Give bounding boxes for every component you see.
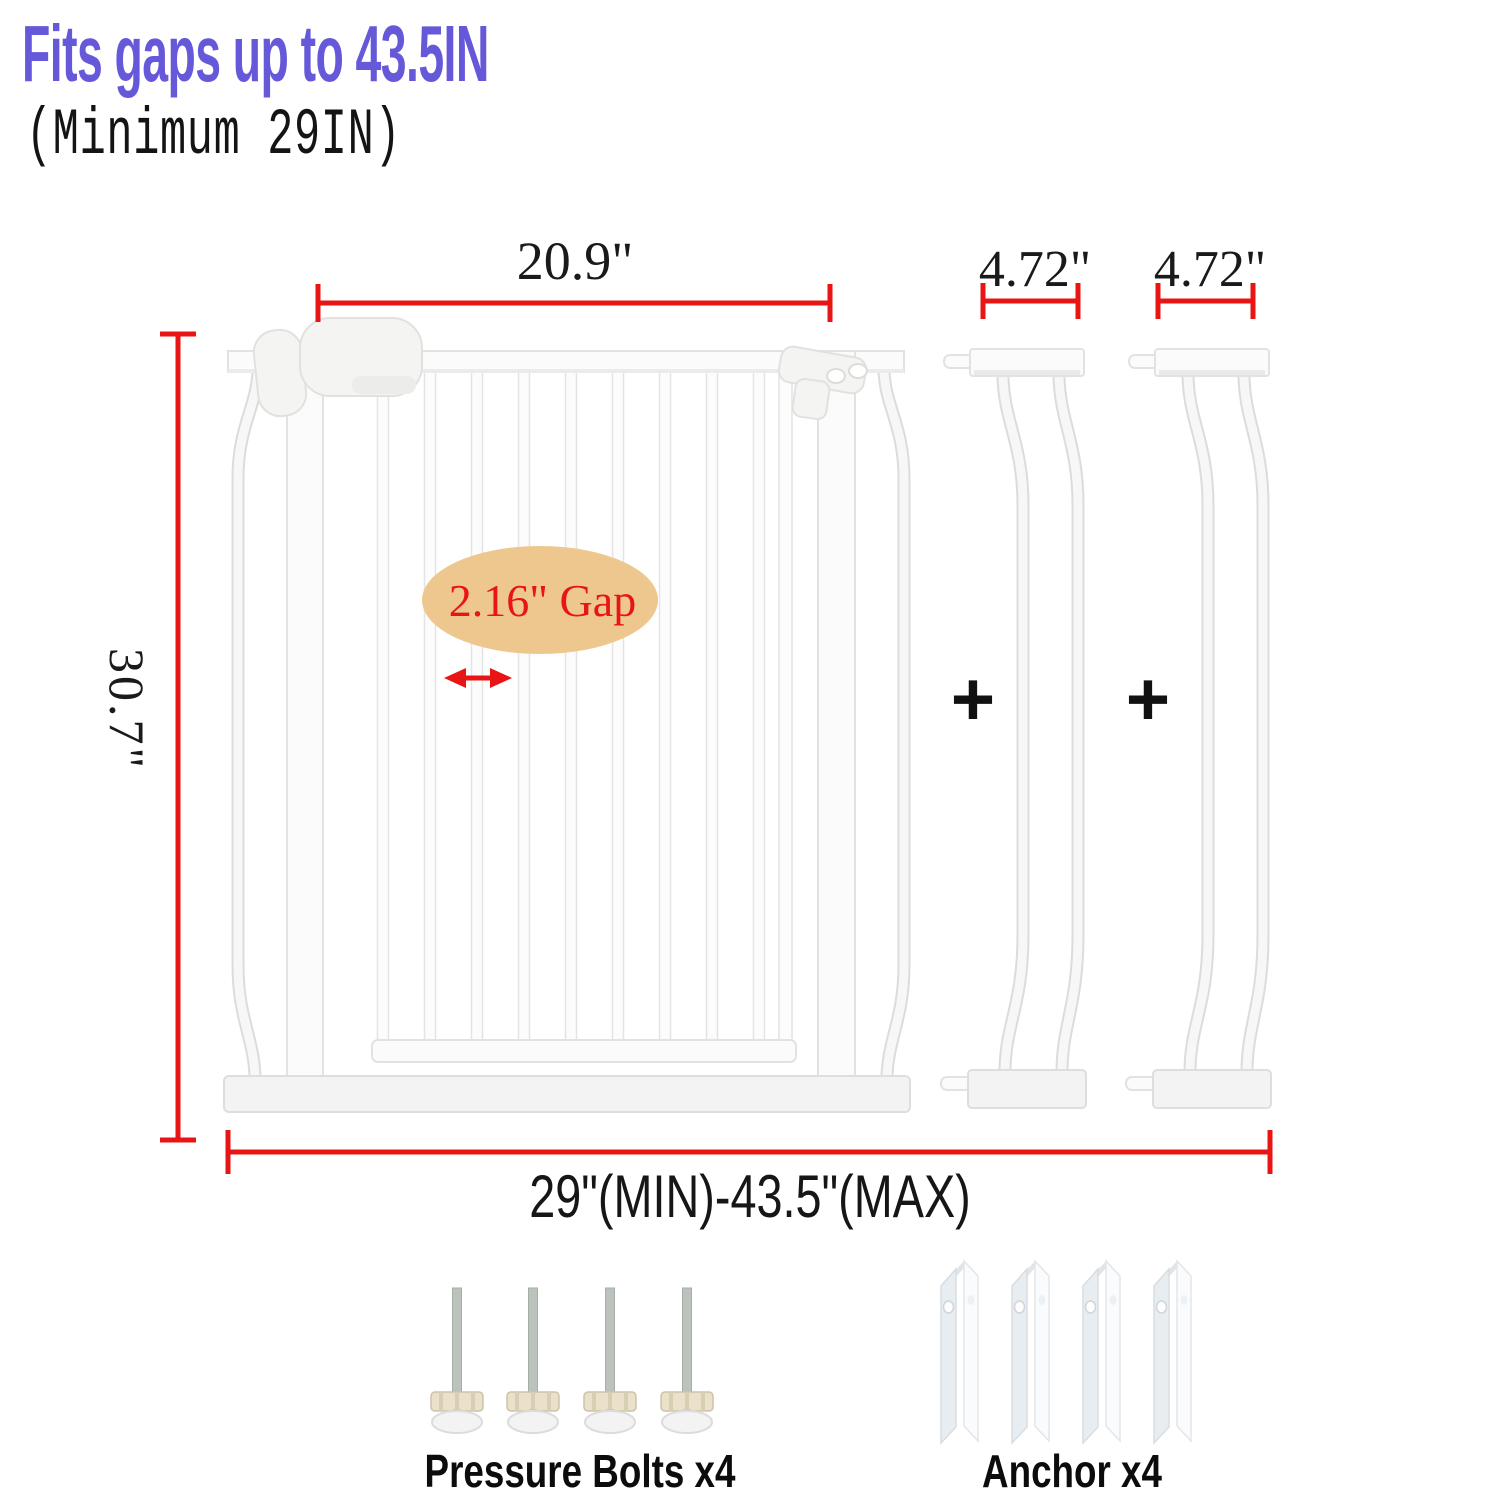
extension2-width-dimension-label: 4.72" xyxy=(1080,240,1340,299)
product-infographic: Fits gaps up to 43.5IN (Minimum 29IN) 20… xyxy=(0,0,1500,1500)
anchor xyxy=(1154,1261,1191,1443)
anchor xyxy=(1012,1261,1049,1443)
pressure-bolts-illustration xyxy=(431,1288,713,1433)
pressure-bolt xyxy=(507,1288,559,1433)
anchors-label: Anchor x4 xyxy=(912,1446,1232,1497)
door-width-dimension-label: 20.9" xyxy=(430,230,720,292)
gate-handle xyxy=(300,318,422,396)
plus-sign-1: + xyxy=(923,654,1023,746)
anchor xyxy=(1083,1261,1120,1443)
gate-height-dimension-label: 30.7" xyxy=(98,648,156,771)
anchor xyxy=(941,1261,978,1443)
gate-right-post xyxy=(818,351,855,1082)
gate-door-bottom-rail xyxy=(372,1040,796,1062)
gate-bottom-rail xyxy=(224,1076,910,1112)
page-subtitle: (Minimum 29IN) xyxy=(26,100,401,173)
gate-door-bars xyxy=(378,356,793,1050)
pressure-bolt xyxy=(661,1288,713,1433)
fit-range-dimension-label: 29"(MIN)-43.5"(MAX) xyxy=(477,1164,1023,1230)
pressure-bolts-label: Pressure Bolts x4 xyxy=(420,1446,740,1497)
pressure-bolt xyxy=(431,1288,483,1433)
gate-diagram-graphics xyxy=(0,0,1500,1500)
page-title: Fits gaps up to 43.5IN xyxy=(22,12,489,96)
plus-sign-2: + xyxy=(1098,654,1198,746)
height-dimension-line xyxy=(160,334,196,1140)
anchors-illustration xyxy=(941,1261,1191,1443)
pressure-bolt xyxy=(584,1288,636,1433)
gate-left-post xyxy=(287,351,323,1082)
bar-gap-label: 2.16" Gap xyxy=(425,574,660,627)
safety-gate-illustration xyxy=(224,318,910,1112)
